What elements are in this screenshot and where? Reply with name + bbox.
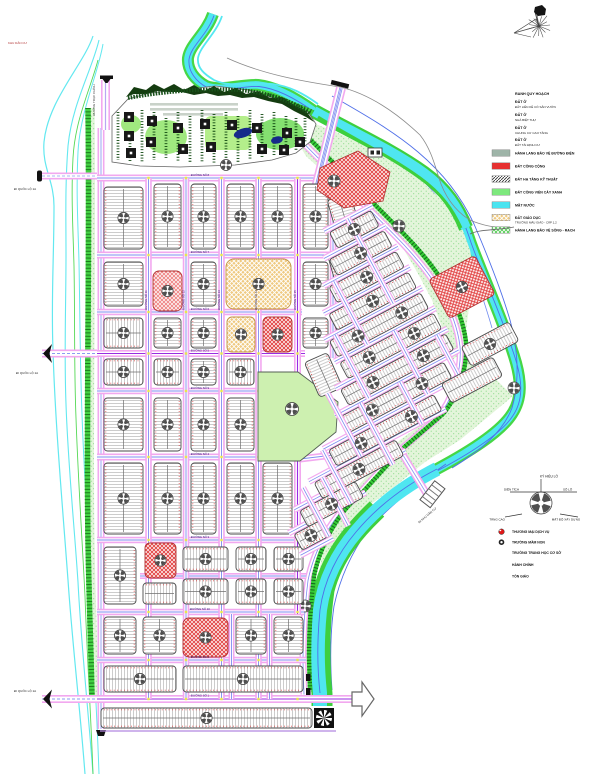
svg-text:ĐI QUỐC LỘ 1A: ĐI QUỐC LỘ 1A xyxy=(16,370,38,375)
svg-text:ĐƯỜNG SỐ 15: ĐƯỜNG SỐ 15 xyxy=(292,290,297,310)
svg-text:ĐƯỜNG SỐ 7: ĐƯỜNG SỐ 7 xyxy=(191,249,210,254)
svg-text:ĐƯỜNG SỐ 9: ĐƯỜNG SỐ 9 xyxy=(191,385,210,390)
svg-text:TẦNG CAO: TẦNG CAO xyxy=(489,518,505,522)
svg-text:CHUNG CƯ CAO TẦNG: CHUNG CƯ CAO TẦNG xyxy=(515,131,549,135)
svg-text:ĐẤT HẠ TẦNG KỸ THUẬT: ĐẤT HẠ TẦNG KỸ THUẬT xyxy=(515,177,559,182)
svg-text:DIỆN TÍCH: DIỆN TÍCH xyxy=(504,487,519,492)
svg-text:ĐƯỜNG SỐ 5: ĐƯỜNG SỐ 5 xyxy=(191,348,210,353)
svg-text:TRƯỜNG MẦM NON: TRƯỜNG MẦM NON xyxy=(512,540,545,545)
svg-text:ĐƯỜNG SỐ 13: ĐƯỜNG SỐ 13 xyxy=(216,290,221,310)
svg-text:TRƯỜNG MẪU GIÁO - CẤP 1,2: TRƯỜNG MẪU GIÁO - CẤP 1,2 xyxy=(515,219,557,224)
svg-text:RANH QUY HOẠCH: RANH QUY HOẠCH xyxy=(515,92,549,96)
svg-text:THƯƠNG MẠI DỊCH VỤ: THƯƠNG MẠI DỊCH VỤ xyxy=(512,530,550,534)
svg-text:ĐƯỜNG SỐ 3: ĐƯỜNG SỐ 3 xyxy=(191,534,210,539)
svg-text:ĐƯỜNG SỐ 10: ĐƯỜNG SỐ 10 xyxy=(190,606,210,611)
svg-text:HÀNH LANG BẢO VỆ SÔNG - RẠCH: HÀNH LANG BẢO VỆ SÔNG - RẠCH xyxy=(515,228,575,233)
svg-text:ĐƯỜNG SỐ 12: ĐƯỜNG SỐ 12 xyxy=(181,290,186,310)
svg-text:ĐẤT LIỀN KỀ CÓ SÂN VƯỜN: ĐẤT LIỀN KỀ CÓ SÂN VƯỜN xyxy=(515,104,556,109)
svg-text:HÀNH LANG BẢO VỆ ĐƯỜNG ĐIỆN: HÀNH LANG BẢO VỆ ĐƯỜNG ĐIỆN xyxy=(515,151,575,156)
svg-text:ĐẤT CÔNG VIÊN CÂY XANH: ĐẤT CÔNG VIÊN CÂY XANH xyxy=(515,190,562,195)
svg-text:ĐƯỜNG SỐ 8: ĐƯỜNG SỐ 8 xyxy=(191,172,210,177)
svg-text:ĐƯỜNG SỐ 11: ĐƯỜNG SỐ 11 xyxy=(143,290,148,310)
svg-text:KHU DÂN CƯ: KHU DÂN CƯ xyxy=(8,40,28,45)
svg-text:ĐẤT TÁI ĐỊNH CƯ: ĐẤT TÁI ĐỊNH CƯ xyxy=(515,142,541,147)
svg-text:MẬT ĐỘ XÂY DỰNG: MẬT ĐỘ XÂY DỰNG xyxy=(552,517,581,522)
svg-text:ĐI QUỐC LỘ 1A: ĐI QUỐC LỘ 1A xyxy=(14,688,36,693)
svg-text:ĐƯỜNG SỐ 14: ĐƯỜNG SỐ 14 xyxy=(253,290,258,310)
svg-text:SỐ LÔ: SỐ LÔ xyxy=(563,487,573,492)
svg-text:ĐI QUỐC LỘ 1A: ĐI QUỐC LỘ 1A xyxy=(14,186,36,191)
svg-text:ĐẤT Ở: ĐẤT Ở xyxy=(515,137,527,142)
svg-text:ĐƯỜNG SỐ 6: ĐƯỜNG SỐ 6 xyxy=(191,306,210,311)
svg-text:HÀNH CHÍNH: HÀNH CHÍNH xyxy=(512,562,534,567)
svg-text:ĐƯỜNG TRỤC CHÍNH: ĐƯỜNG TRỤC CHÍNH xyxy=(91,84,96,115)
svg-text:ĐẤT Ở: ĐẤT Ở xyxy=(515,125,527,130)
svg-text:ĐẤT Ở: ĐẤT Ở xyxy=(515,99,527,104)
svg-text:ĐẤT CÔNG CỘNG: ĐẤT CÔNG CỘNG xyxy=(515,164,545,169)
svg-text:ĐƯỜNG SỐ 1: ĐƯỜNG SỐ 1 xyxy=(191,693,210,698)
svg-text:TÔN GIÁO: TÔN GIÁO xyxy=(512,574,529,579)
svg-text:TRƯỜNG TRUNG HỌC CƠ SỞ: TRƯỜNG TRUNG HỌC CƠ SỞ xyxy=(512,550,561,555)
svg-text:ĐƯỜNG SỐ 4: ĐƯỜNG SỐ 4 xyxy=(191,451,210,456)
svg-text:MẶT NƯỚC: MẶT NƯỚC xyxy=(515,203,535,208)
svg-text:NHÀ BIỆT THỰ: NHÀ BIỆT THỰ xyxy=(515,117,537,122)
svg-text:ĐẤT Ở: ĐẤT Ở xyxy=(515,112,527,117)
svg-text:ĐƯỜNG SỐ 2: ĐƯỜNG SỐ 2 xyxy=(191,654,210,659)
svg-text:KÝ HIỆU LÔ: KÝ HIỆU LÔ xyxy=(540,474,558,479)
